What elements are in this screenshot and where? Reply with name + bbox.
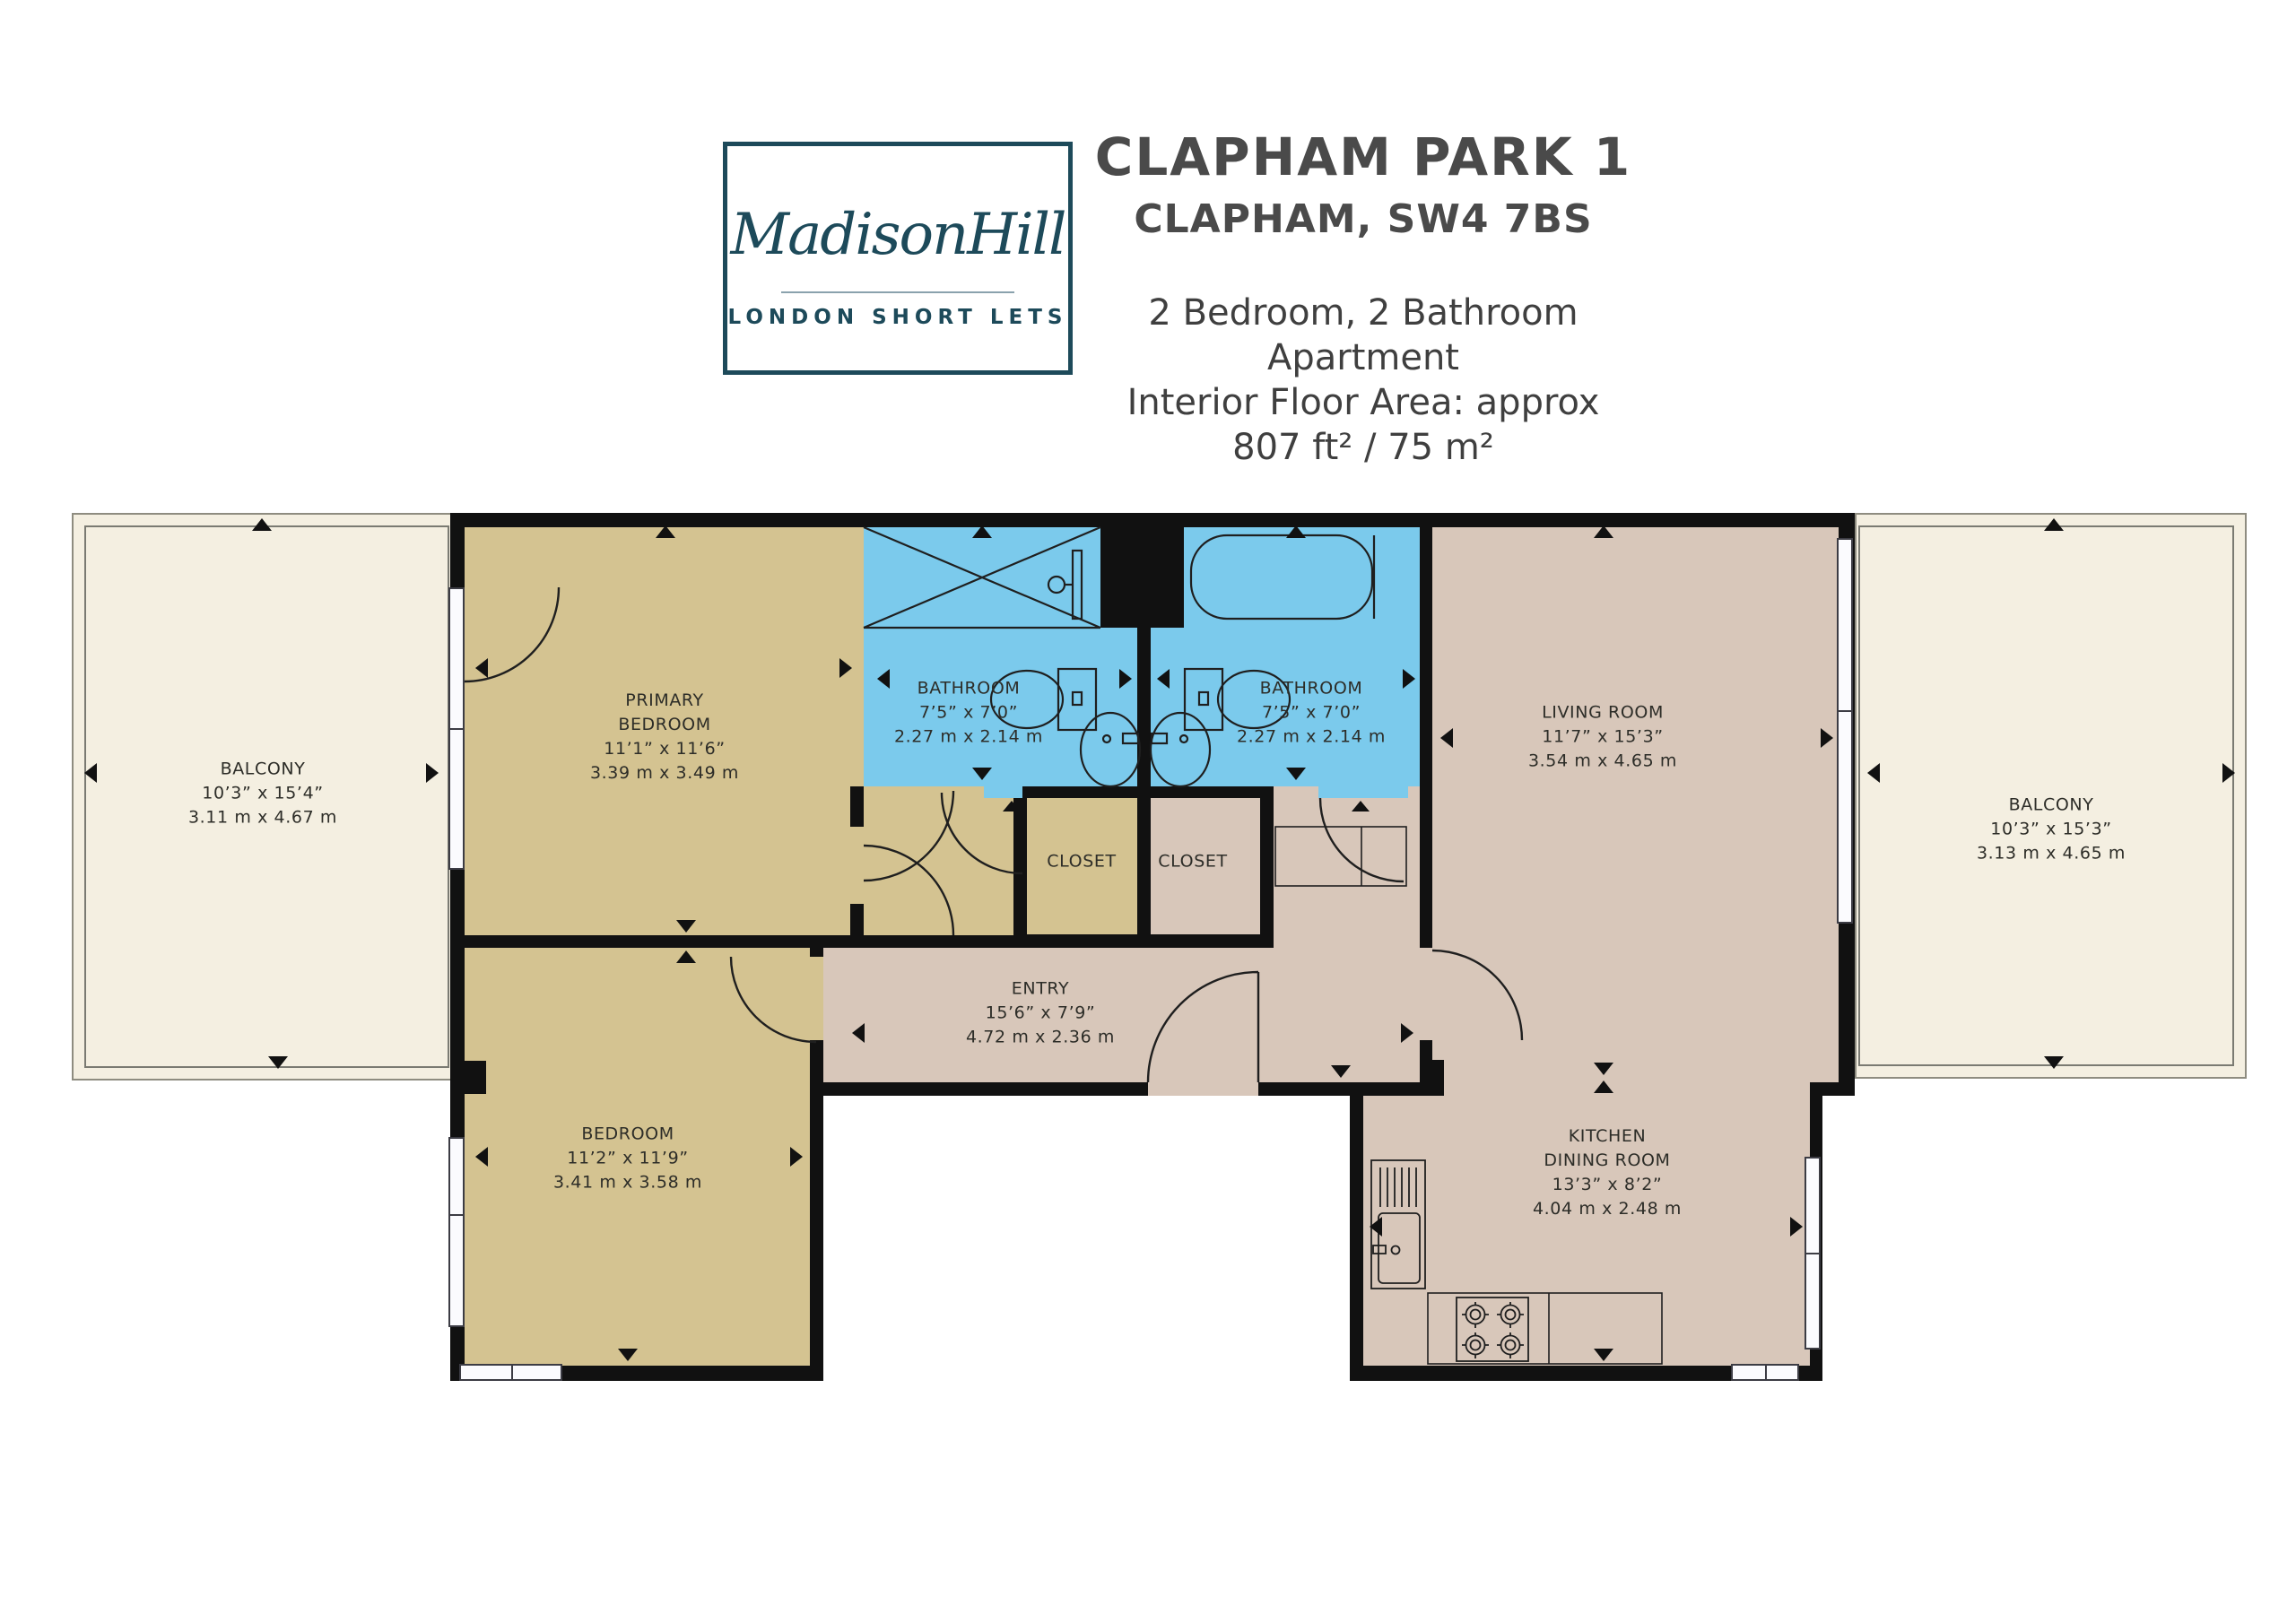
living-room-door-gap (1420, 948, 1432, 1040)
bathroom-1-floor-ext (1100, 628, 1137, 786)
floorplan-page: MadisonHill LONDON SHORT LETS CLAPHAM PA… (0, 0, 2296, 1623)
kitchen-living-opening (1432, 1060, 1810, 1096)
label-closet-1: CLOSET (1047, 850, 1116, 874)
entry-floor (823, 948, 1420, 1082)
window-kitchen-bottom (1731, 1364, 1799, 1381)
window-living-room (1837, 538, 1853, 924)
apartment-summary: 2 Bedroom, 2 Bathroom Apartment (1094, 291, 1632, 380)
label-primary-bedroom: PRIMARY BEDROOM 11’1” x 11’6” 3.39 m x 3… (590, 689, 739, 785)
agency-logo: MadisonHill LONDON SHORT LETS (723, 142, 1073, 375)
bedroom-hall-floor (850, 786, 1013, 935)
wall-hall-jamb-top (850, 786, 864, 827)
title-block: CLAPHAM PARK 1 CLAPHAM, SW4 7BS 2 Bedroo… (1094, 126, 1632, 470)
window-primary-bedroom (448, 587, 465, 870)
entry-door-threshold (1148, 1082, 1258, 1096)
floor-area: Interior Floor Area: approx 807 ft² / 75… (1094, 380, 1632, 470)
label-closet-2: CLOSET (1158, 850, 1227, 874)
bathroom-1-door-threshold (984, 786, 1022, 798)
label-entry: ENTRY 15’6” x 7’9” 4.72 m x 2.36 m (966, 977, 1115, 1050)
bathroom-2-door-threshold (1318, 786, 1408, 798)
bedroom-door-gap (810, 957, 823, 1040)
label-balcony-right: BALCONY 10’3” x 15’3” 3.13 m x 4.65 m (1977, 794, 2126, 866)
window-kitchen-right (1805, 1157, 1821, 1350)
label-balcony-left: BALCONY 10’3” x 15’4” 3.11 m x 4.67 m (188, 758, 337, 830)
agency-logo-brand: MadisonHill (727, 202, 1068, 268)
wall-hall-jamb-bottom (850, 904, 864, 935)
logo-divider (781, 291, 1014, 293)
agency-logo-tagline: LONDON SHORT LETS (727, 306, 1068, 329)
bath2-hall-floor (1274, 786, 1420, 948)
label-bedroom: BEDROOM 11’2” x 11’9” 3.41 m x 3.58 m (553, 1123, 702, 1195)
wall-pillar-bedroom (465, 1061, 486, 1094)
page-title: CLAPHAM PARK 1 (1094, 126, 1632, 188)
window-bedroom-bottom (459, 1364, 562, 1381)
bathroom-2-floor-ext (1151, 628, 1184, 786)
page-subtitle: CLAPHAM, SW4 7BS (1094, 195, 1632, 244)
label-bathroom-1: BATHROOM 7’5” x 7’0” 2.27 m x 2.14 m (894, 677, 1043, 750)
label-kitchen: KITCHEN DINING ROOM 13’3” x 8’2” 4.04 m … (1533, 1124, 1682, 1221)
window-bedroom-left (448, 1137, 465, 1327)
label-living-room: LIVING ROOM 11’7” x 15’3” 3.54 m x 4.65 … (1528, 701, 1677, 774)
label-bathroom-2: BATHROOM 7’5” x 7’0” 2.27 m x 2.14 m (1237, 677, 1386, 750)
living-room-floor (1432, 527, 1839, 1082)
wall-corner-block (1420, 1060, 1444, 1096)
